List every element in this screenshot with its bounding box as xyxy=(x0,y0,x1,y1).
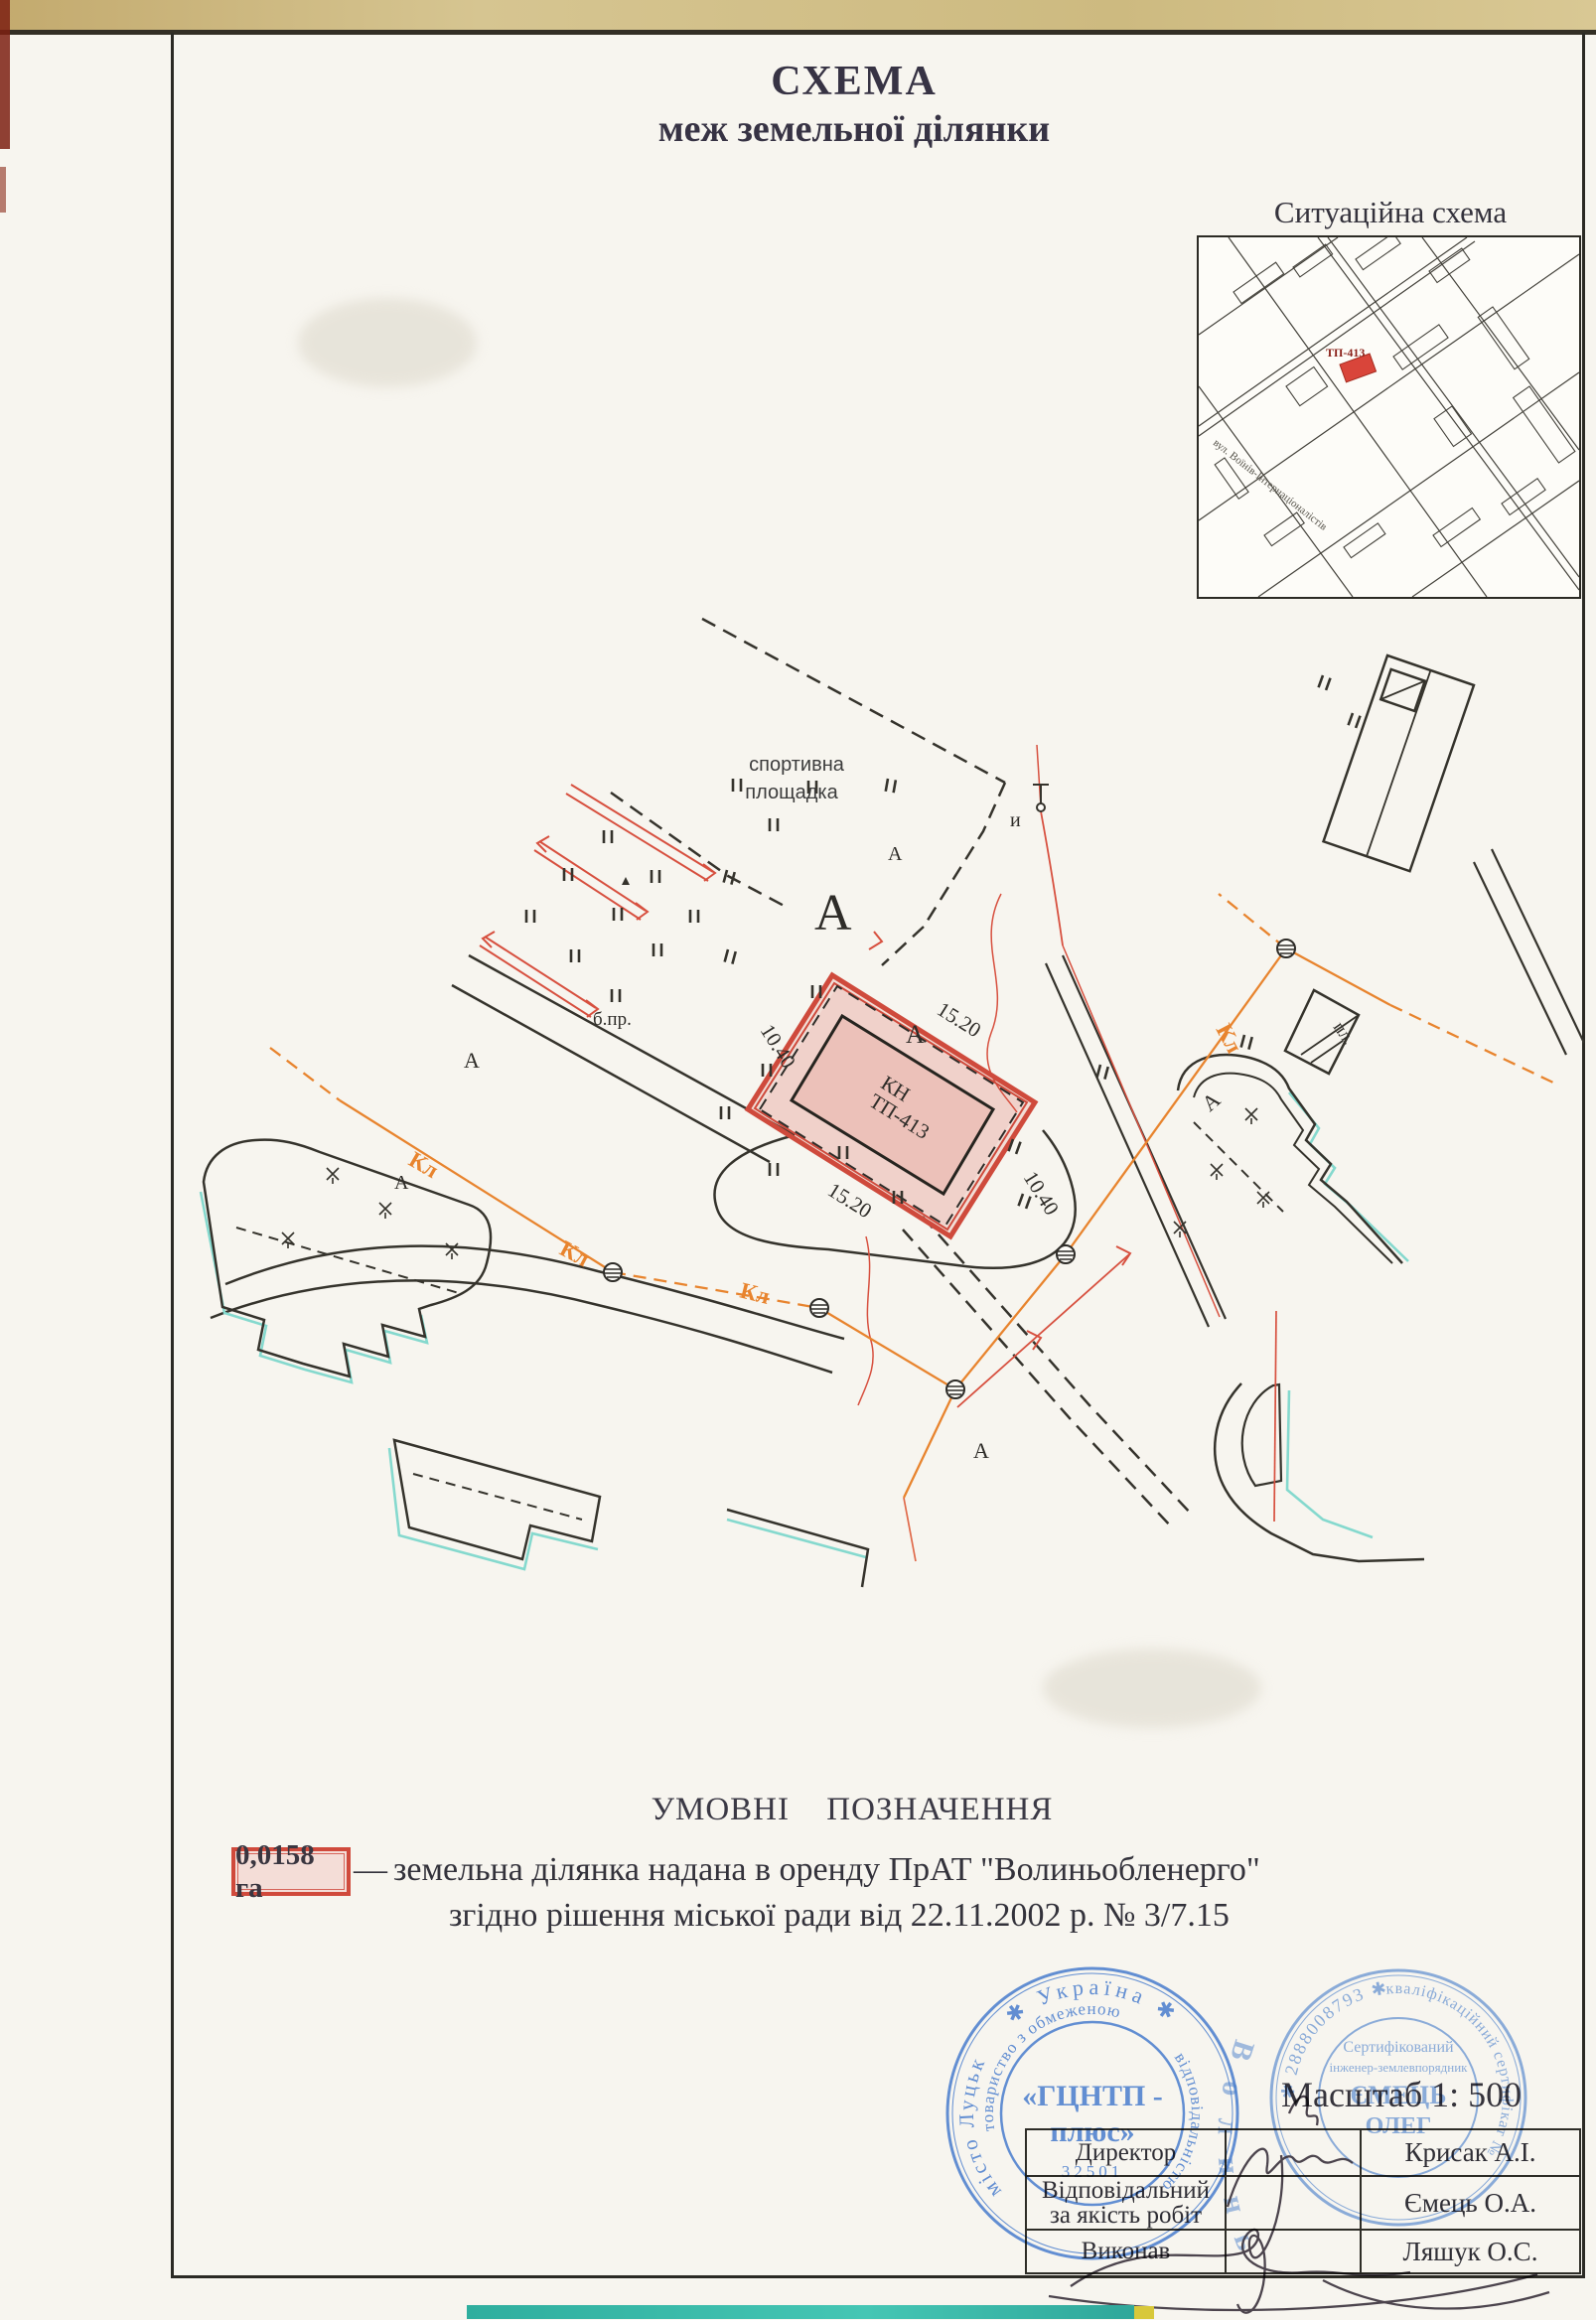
triangle-mark xyxy=(622,877,630,885)
scan-edge-mark xyxy=(0,167,6,213)
signature-cell xyxy=(1227,2130,1362,2177)
area-letter: А xyxy=(973,1438,989,1463)
dim-top: 15.20 xyxy=(933,997,985,1042)
scale-label: Масштаб 1: 500 xyxy=(1281,2074,1522,2115)
role-executor: Виконав xyxy=(1082,2239,1171,2264)
table-row-name: Ємець О.А. xyxy=(1362,2177,1579,2231)
scan-smudge xyxy=(298,298,477,387)
situational-scheme-label: Ситуаційна схема xyxy=(1172,195,1596,230)
building-trim xyxy=(201,1092,1408,1569)
table-row-name: Крисак А.І. xyxy=(1362,2130,1579,2177)
table-row-role: Директор xyxy=(1027,2130,1227,2177)
mini-map-buildings xyxy=(1215,235,1575,558)
land-plot-drawing: КН ТП-413 15.20 10.40 15.20 10.40 xyxy=(171,596,1584,1599)
name-krysak: Крисак А.І. xyxy=(1404,2137,1535,2168)
scanned-document-page: СХЕМА меж земельної ділянки Ситуаційна с… xyxy=(0,0,1596,2320)
mini-map-streets xyxy=(1199,237,1579,597)
table-row-role: Відповідальний за якість робіт xyxy=(1027,2177,1227,2231)
area-letter: А xyxy=(888,843,903,865)
pole-symbol xyxy=(1033,785,1049,811)
leased-plot: КН ТП-413 xyxy=(748,975,1035,1236)
dim-right: 10.40 xyxy=(1019,1167,1064,1220)
table-row-role: Виконав xyxy=(1027,2231,1227,2272)
document-subtitle: меж земельної ділянки xyxy=(457,107,1251,151)
signature-cell xyxy=(1227,2231,1362,2272)
legend-heading: УМОВНІ ПОЗНАЧЕННЯ xyxy=(455,1792,1249,1828)
document-title: СХЕМА xyxy=(556,58,1152,105)
scan-bottom-strip xyxy=(467,2305,1134,2319)
sport-label-line1: спортивна xyxy=(749,754,845,776)
scan-top-band xyxy=(0,0,1596,30)
signature-cell xyxy=(1227,2177,1362,2231)
i-label: и xyxy=(1010,809,1021,831)
cable-label: Кл xyxy=(1212,1020,1247,1058)
scan-edge-mark xyxy=(0,0,10,149)
area-letter: А xyxy=(464,1048,480,1073)
legend-dash: — xyxy=(354,1851,387,1889)
situational-map: ТП-413 вул. Воїнів-Інтернаціоналістів xyxy=(1197,235,1581,599)
legend-line1: земельна ділянка надана в оренду ПрАТ "В… xyxy=(393,1851,1260,1889)
name-yemets: Ємець О.А. xyxy=(1404,2188,1536,2219)
area-letter: А xyxy=(394,1172,409,1194)
role-director: Директор xyxy=(1076,2140,1176,2166)
area-letter-large: А xyxy=(814,885,852,942)
signature-table: Директор Крисак А.І. Відповідальний за я… xyxy=(1025,2128,1581,2274)
role-quality: Відповідальний за якість робіт xyxy=(1032,2178,1221,2229)
executor-signature-flourish xyxy=(1323,2280,1549,2309)
area-value-box: 0,0158 га xyxy=(231,1847,351,1896)
area-letter: А xyxy=(906,1020,925,1049)
tp-413-marker-label: ТП-413 xyxy=(1326,346,1365,360)
scan-smudge xyxy=(1043,1649,1261,1728)
scan-bottom-chip xyxy=(1134,2306,1154,2319)
legend-line2: згідно рішення міської ради від 22.11.20… xyxy=(449,1897,1230,1935)
cable-label: Кл xyxy=(405,1147,443,1183)
cable-label: Кл xyxy=(738,1278,773,1309)
area-value: 0,0158 га xyxy=(235,1839,347,1905)
sport-label-line2: площадка xyxy=(745,782,838,803)
name-liashuk: Ляшук О.С. xyxy=(1403,2237,1538,2267)
area-letter: А xyxy=(1197,1087,1225,1115)
table-row-name: Ляшук О.С. xyxy=(1362,2231,1579,2272)
b-pr-label: б.пр. xyxy=(593,1009,632,1030)
